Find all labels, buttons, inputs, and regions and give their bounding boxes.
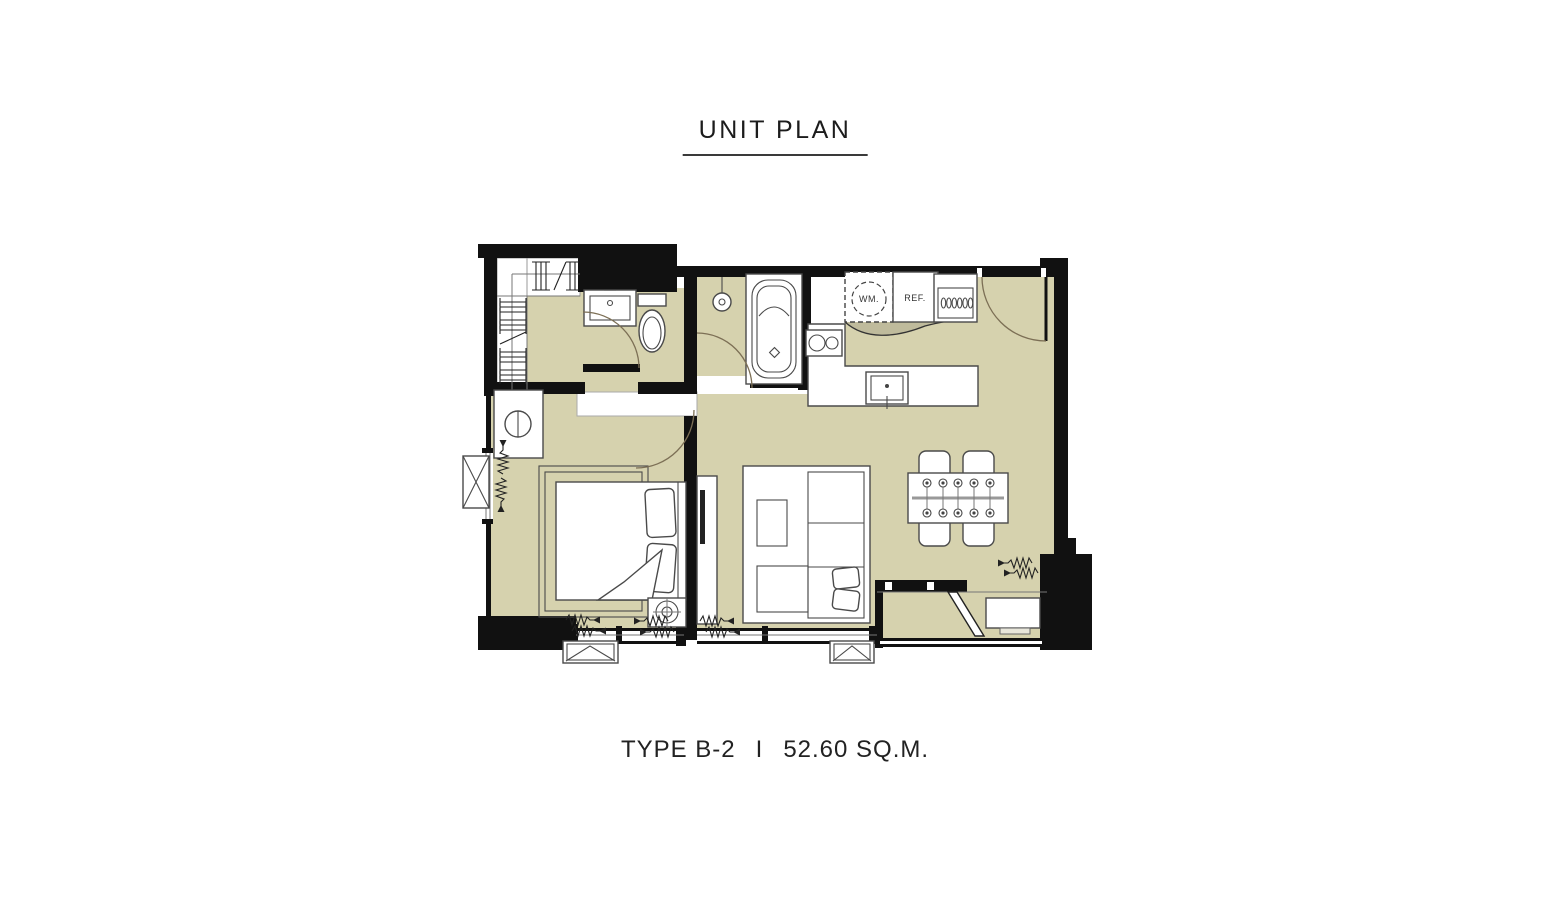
unit-plan-page: UNIT PLAN [0,0,1550,905]
pillow [832,567,860,590]
wall-segment [638,382,697,394]
shaft-block [578,244,677,292]
nightstand-icon [648,598,686,627]
door-leaf [583,364,640,372]
hallway-threshold [577,392,697,416]
unit-type-label: TYPE B-2 [621,736,736,763]
wall-stub [1058,538,1076,554]
unit-area-label: 52.60 SQ.M. [783,736,929,763]
caption-divider: I [756,736,764,763]
pillow [645,488,676,537]
tv-console-icon [697,476,717,624]
column-block [478,616,576,650]
burner-rack-icon [934,274,977,322]
unit-type-caption: TYPE B-2I52.60 SQ.M. [621,736,929,764]
kitchen-strip-floor [811,277,845,324]
floor-plan-drawing: WM. REF. [0,0,1550,905]
tv-icon [700,490,705,544]
toilet-icon [638,294,666,352]
pillow [832,588,860,611]
svg-text:WM.: WM. [859,294,879,304]
window-frame [697,628,877,631]
ac-vent-icon [830,641,874,663]
svg-text:REF.: REF. [904,293,926,303]
washing-machine-icon: WM. [845,272,893,322]
wall-segment [484,244,497,396]
ac-condenser-icon [986,598,1040,634]
refrigerator-icon: REF. [893,272,938,322]
window-post [482,448,493,453]
bathtub-icon [746,274,802,384]
kitchen-sink-icon [866,372,908,409]
wall-segment [1054,266,1068,564]
bed-icon [556,482,686,600]
window-post [482,519,493,524]
ac-vent-icon [563,641,618,663]
wall-segment [684,270,697,382]
stove-hob-icon [806,330,842,356]
dresser-icon [494,390,543,458]
column-block [1040,554,1092,650]
sofa-icon [743,466,870,623]
ac-vent-icon [463,456,489,508]
sink-icon [584,290,636,326]
